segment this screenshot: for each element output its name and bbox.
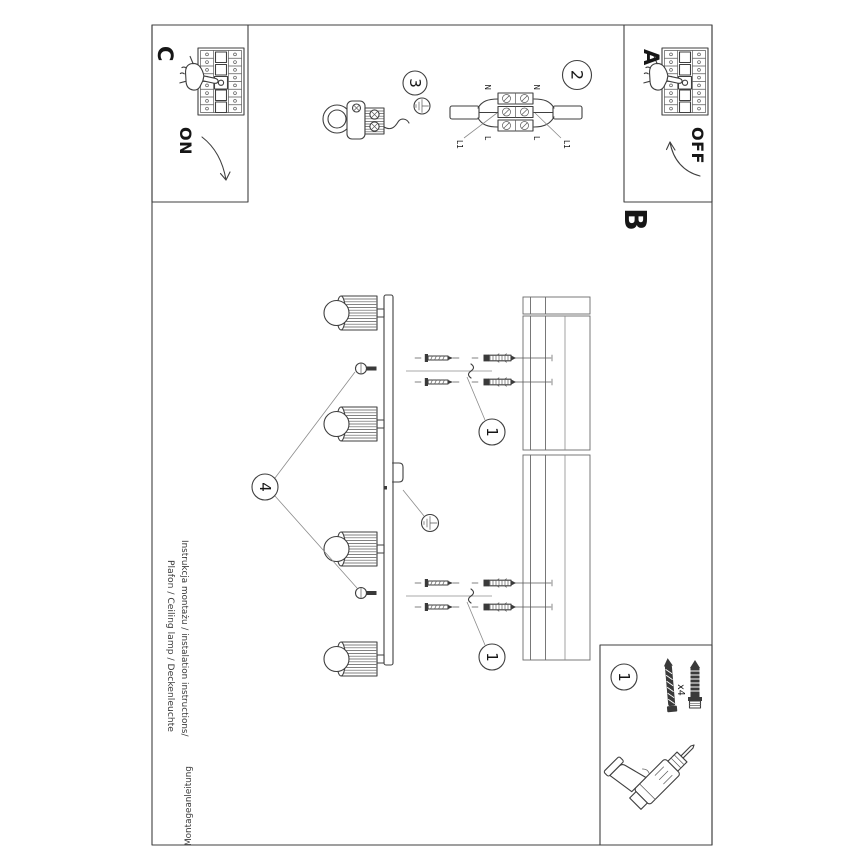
label-neutral-top: N — [532, 84, 541, 90]
spotlight-1 — [324, 296, 384, 330]
fixture-wires — [478, 99, 498, 127]
step-2-badge: 2 — [563, 61, 592, 90]
fixture-cable — [450, 106, 479, 119]
label-l1-bottom: L1 — [455, 140, 464, 149]
on-label: ON — [176, 127, 195, 155]
step-1-leader — [467, 377, 485, 420]
label-l1-top: L1 — [562, 140, 571, 149]
rotated-instruction-sheet: A OFF B C ON 2 — [0, 0, 868, 868]
ceiling-boards — [523, 297, 590, 660]
screw-and-plug-stack — [415, 579, 552, 587]
panel-box-a: A OFF — [624, 25, 712, 202]
step-1-badge: 1 — [479, 644, 505, 670]
step-4-badge: 4 — [252, 474, 278, 500]
earth-symbol-icon — [414, 98, 430, 114]
step-4-number: 4 — [256, 482, 274, 492]
terminal-block — [498, 93, 533, 131]
footer-line1-flipped: Montageanleitung — [184, 766, 194, 846]
lamp-rail — [384, 295, 393, 665]
step-3-bracket: 3 — [323, 71, 430, 139]
quantity-label: x4 — [675, 684, 686, 696]
drill-icon — [604, 713, 702, 811]
tools-box: 1 x4 — [600, 645, 712, 845]
mounting-screw-left — [356, 363, 377, 374]
screw-and-plug-stack — [415, 354, 552, 362]
off-label: OFF — [688, 127, 707, 164]
spotlight-4 — [324, 642, 384, 676]
footer: Instrukcja montażu / instalation instruc… — [165, 540, 194, 846]
rail-hook-tab — [393, 463, 404, 482]
earth-wire — [384, 119, 409, 129]
label-live-top: L — [532, 136, 541, 141]
step-2-wiring-diagram: 2 N N L L L1 L1 — [450, 61, 592, 150]
footer-line2: Plafon / Ceiling lamp / Deckenleuchte — [165, 560, 176, 732]
step-1-badge: 1 — [479, 419, 505, 445]
screw-and-plug-stack — [415, 378, 552, 386]
step-3-badge: 3 — [403, 71, 427, 95]
section-c-label: C — [153, 46, 177, 61]
step-1-number: 1 — [483, 652, 501, 662]
section-b-label: B — [617, 208, 652, 231]
bracket-terminal — [365, 108, 384, 134]
earth-symbol-icon — [422, 515, 439, 532]
sheet-border — [152, 25, 712, 845]
step-2-number: 2 — [568, 70, 587, 80]
mounting-screw-right — [356, 588, 377, 599]
step-1-leader — [467, 602, 485, 645]
section-a-label: A — [639, 49, 663, 66]
instruction-sheet: A OFF B C ON 2 — [0, 0, 868, 868]
screw-and-plug-stack — [415, 603, 552, 611]
ceiling-lamp — [324, 295, 439, 676]
label-neutral-bottom: N — [483, 84, 492, 90]
step-1-badge: 1 — [611, 664, 637, 690]
wall-plug-icon — [688, 660, 702, 708]
on-arrow-icon — [202, 137, 230, 180]
spotlight-2 — [324, 407, 384, 441]
bracket-screw-icon — [353, 104, 361, 112]
earth-leader — [403, 490, 424, 516]
step-3-number: 3 — [406, 78, 424, 88]
step-1-number: 1 — [615, 672, 633, 682]
supply-wires — [534, 99, 554, 127]
panel-box-c: C ON — [152, 25, 248, 202]
footer-line1: Instrukcja montażu / instalation instruc… — [179, 540, 189, 737]
supply-cable — [553, 106, 582, 119]
rail-hole-mark — [384, 486, 388, 490]
label-live-bottom: L — [483, 136, 492, 141]
step-1-number: 1 — [483, 427, 501, 437]
